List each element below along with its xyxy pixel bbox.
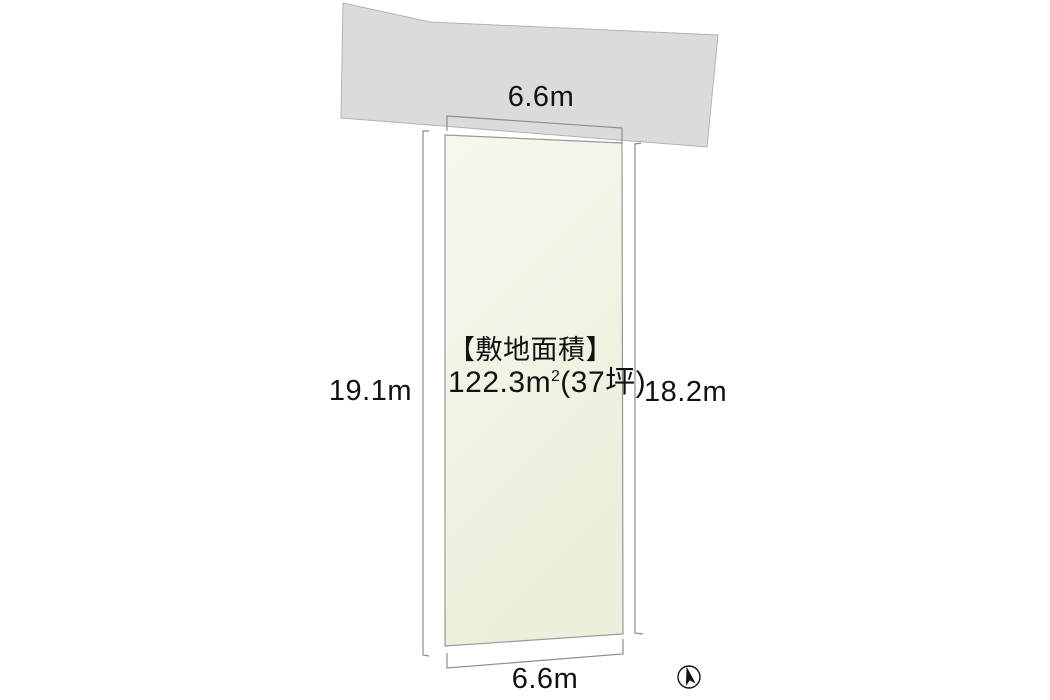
left-dimension-line bbox=[423, 131, 429, 656]
site-area-square-sup: 2 bbox=[551, 368, 560, 385]
site-area-tsubo: (37坪) bbox=[560, 366, 646, 399]
top-width-label: 6.6m bbox=[461, 82, 621, 112]
site-area-title: 【敷地面積】 bbox=[448, 336, 646, 364]
road-polygon bbox=[341, 3, 718, 147]
site-area-value: 122.3m bbox=[448, 366, 551, 399]
site-area-annotation: 【敷地面積】 122.3m2(37坪) bbox=[448, 336, 646, 399]
land-plot-diagram: 6.6m 19.1m 18.2m 6.6m 【敷地面積】 122.3m2(37坪… bbox=[0, 0, 1050, 700]
left-depth-label: 19.1m bbox=[286, 376, 412, 406]
right-depth-label: 18.2m bbox=[644, 377, 727, 407]
north-arrow-compass-icon bbox=[678, 666, 700, 688]
bottom-width-label: 6.6m bbox=[465, 664, 625, 694]
site-area-value-line: 122.3m2(37坪) bbox=[448, 367, 646, 399]
